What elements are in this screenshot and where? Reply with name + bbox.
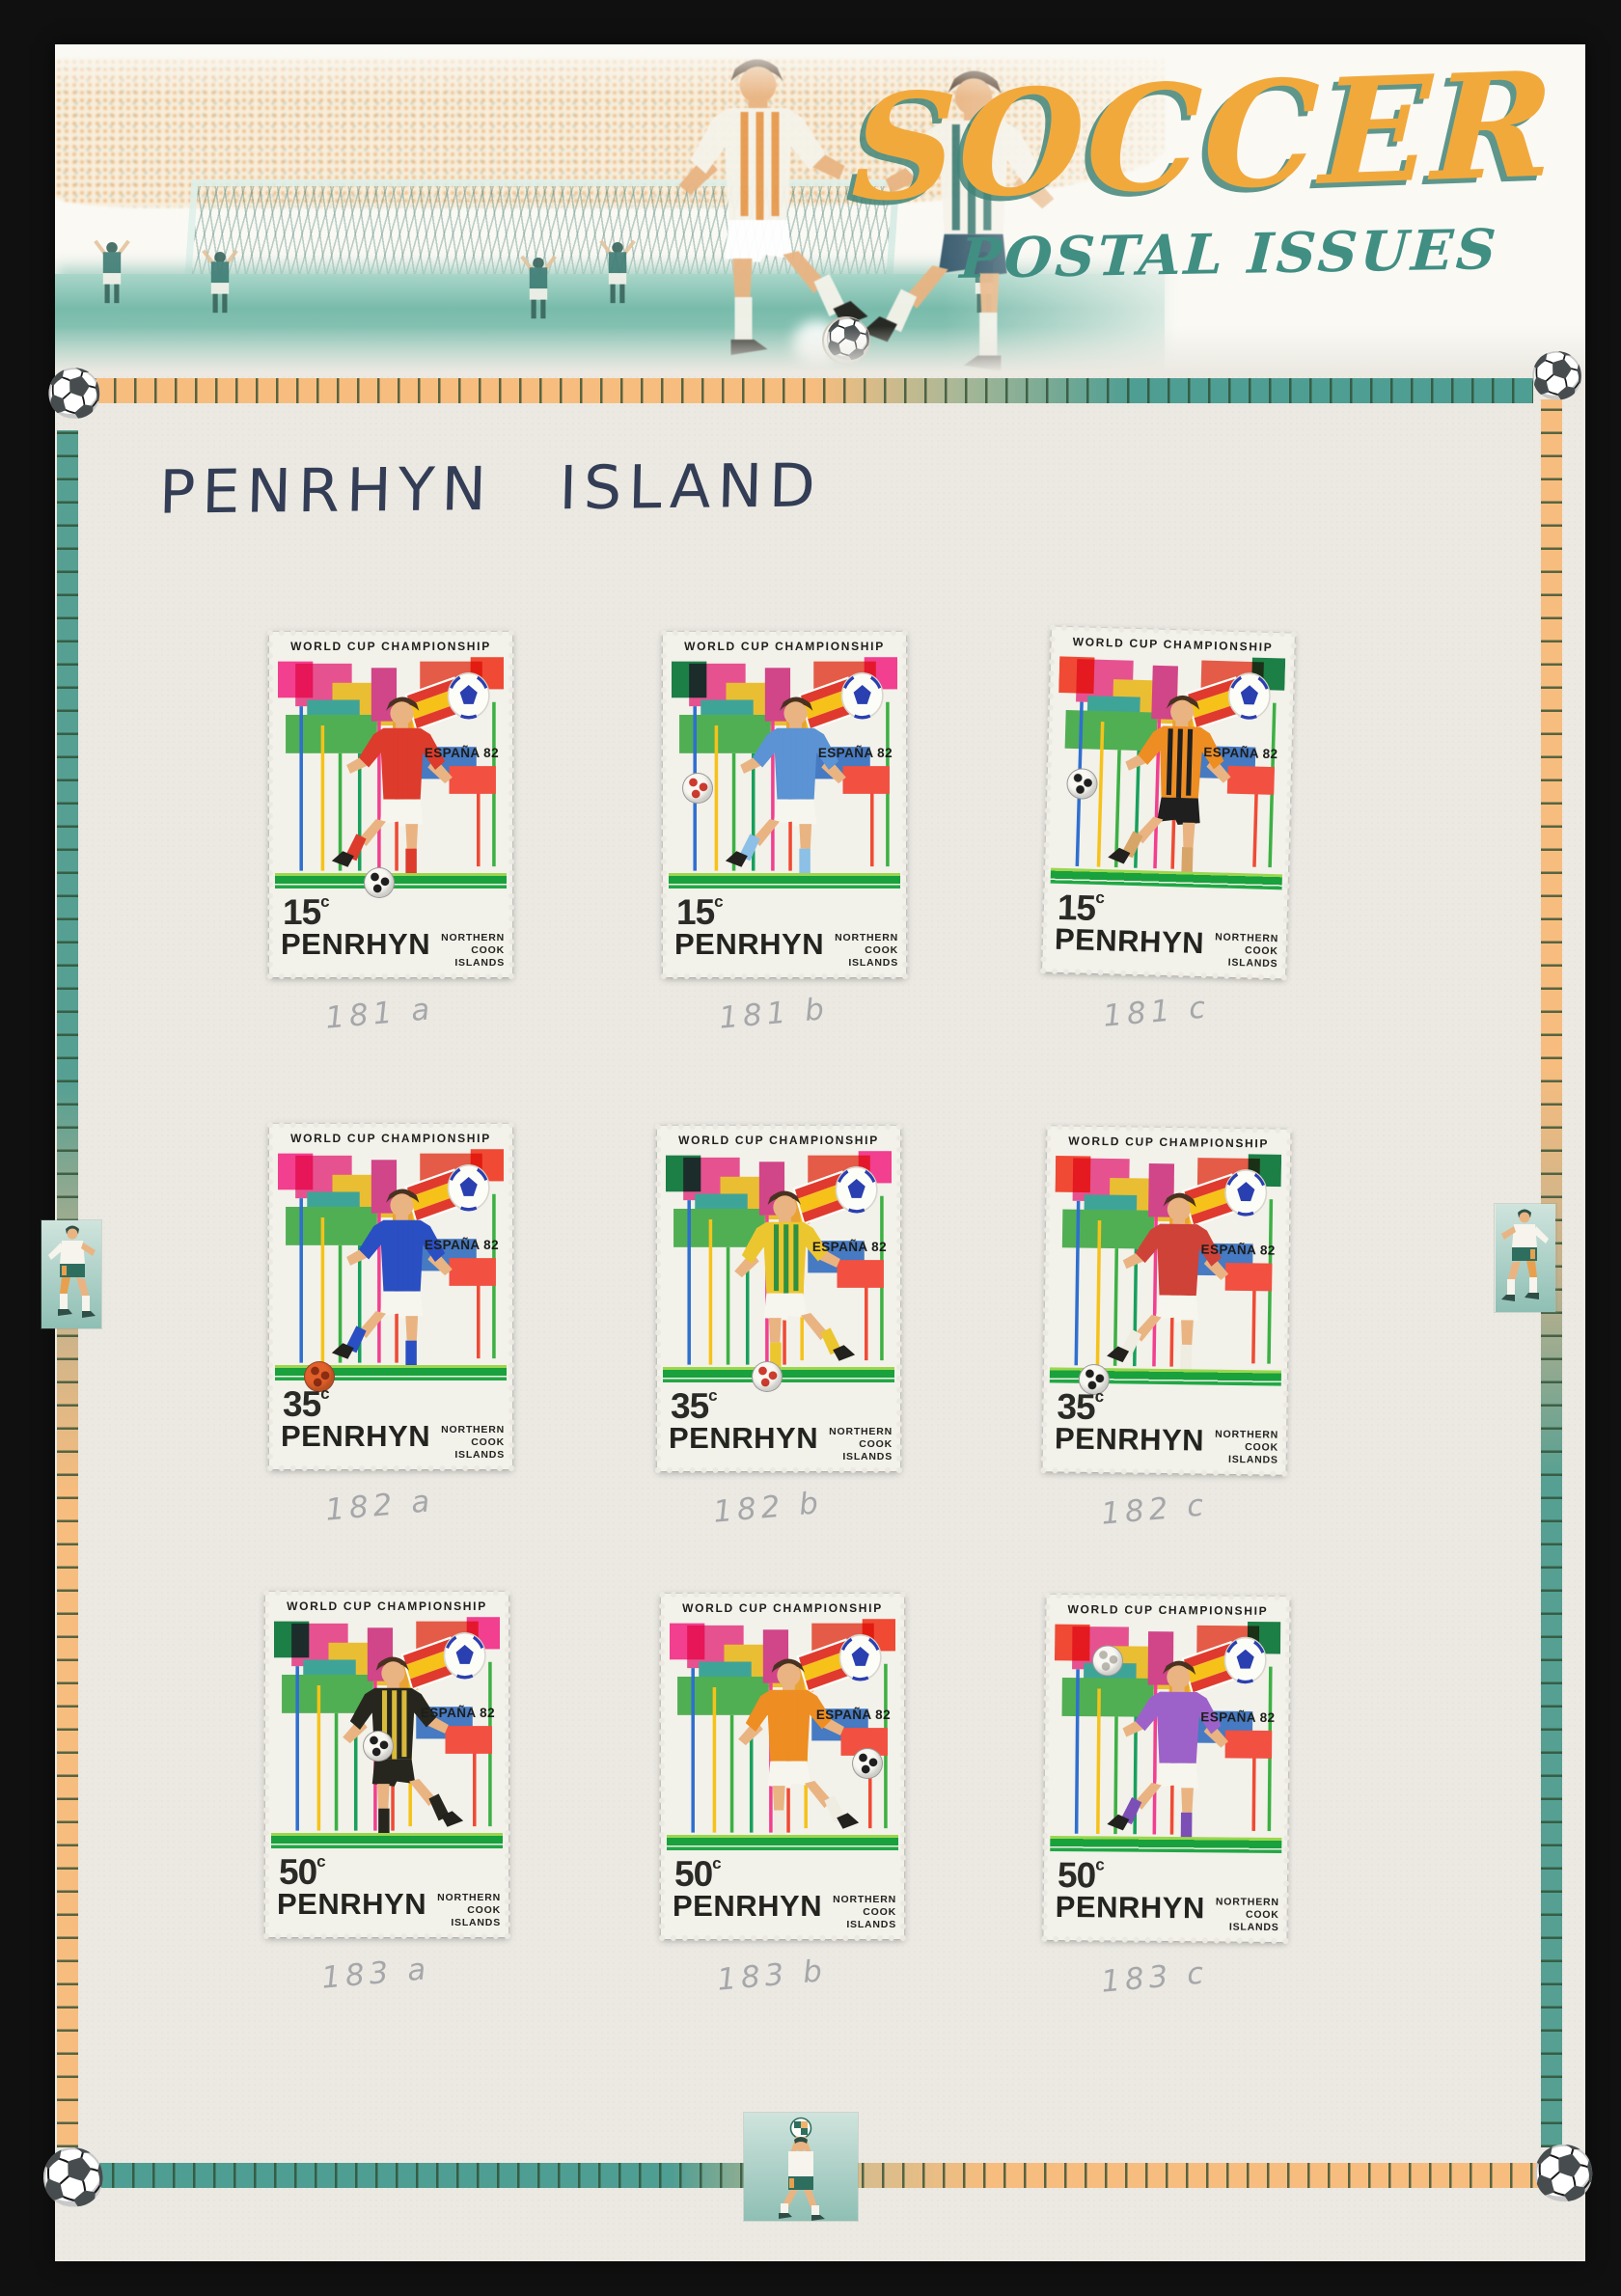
country-row: PENRHYN NORTHERNCOOK ISLANDS [1054,924,1278,971]
stamp-heading: WORLD CUP CHAMPIONSHIP [661,1601,904,1615]
catalog-annotation: 183 c [1100,1948,1297,1999]
soccer-player-medallion-left [41,1220,101,1328]
soccer-ball-icon: ⚽ [1531,2147,1587,2203]
stamp-181a: WORLD CUP CHAMPIONSHIP ESPAÑA 82 15c PEN… [269,632,520,1027]
soccer-ball-icon: ⚽ [45,370,96,421]
stamp-artwork [1054,650,1285,876]
ground-stripe [669,873,900,888]
handwritten-title: PENRHYN ISLAND [158,450,822,527]
player-figure [1101,1656,1250,1854]
stamp-182c: WORLD CUP CHAMPIONSHIP ESPAÑA 82 35c PEN… [1045,1128,1296,1523]
country-name: PENRHYN [281,929,430,959]
scanned-album-photo: { "header": { "title": "SOCCER", "subtit… [0,0,1621,2296]
catalog-annotation: 181 a [324,984,521,1035]
country-row: PENRHYN NORTHERNCOOK ISLANDS [1055,1423,1279,1467]
country-row: PENRHYN NORTHERNCOOK ISLANDS [277,1889,501,1929]
region-name: NORTHERNCOOK ISLANDS [438,932,505,970]
region-name: NORTHERNCOOK ISLANDS [434,1892,501,1929]
espana-82-label: ESPAÑA 82 [816,1708,891,1722]
region-name: NORTHERNCOOK ISLANDS [1212,1429,1278,1467]
soccer-ball-graphic [852,1748,883,1779]
player-figure [714,1188,861,1384]
stamp-heading: WORLD CUP CHAMPIONSHIP [265,1599,508,1613]
player-figure [326,694,473,890]
catalog-annotation: 182 b [712,1478,909,1529]
stamp-body: WORLD CUP CHAMPIONSHIP ESPAÑA 82 50c PEN… [265,1592,508,1937]
ground-stripe [271,1833,503,1848]
country-row: PENRHYN NORTHERNCOOK ISLANDS [281,929,505,970]
player-figure [720,694,866,890]
stamp-artwork [670,1617,895,1837]
stamp-artwork [672,655,897,875]
soccer-player-medallion-bottom [744,2113,858,2221]
stamp-181c: WORLD CUP CHAMPIONSHIP ESPAÑA 82 15c PEN… [1047,630,1298,1025]
catalog-annotation: 183 b [716,1946,913,1997]
region-name: NORTHERNCOOK ISLANDS [832,932,898,970]
stamp-artwork [278,1147,504,1367]
ground-stripe [1050,1836,1281,1853]
soccer-ball-graphic [682,773,713,804]
stamp-artwork [666,1149,892,1369]
stamp-artwork [1053,1149,1281,1372]
header-collage: ⚽ SOCCER POSTAL ISSUES [55,44,1585,372]
stamp-body: WORLD CUP CHAMPIONSHIP ESPAÑA 82 50c PEN… [1043,1595,1289,1942]
stamp-183b: WORLD CUP CHAMPIONSHIP ESPAÑA 82 50c PEN… [661,1594,912,1989]
stamp-body: WORLD CUP CHAMPIONSHIP ESPAÑA 82 35c PEN… [1043,1126,1291,1474]
page-title: SOCCER [849,44,1557,234]
country-name: PENRHYN [1055,1423,1205,1455]
espana-82-label: ESPAÑA 82 [818,746,893,760]
region-name: NORTHERNCOOK ISLANDS [1213,1896,1279,1934]
stamp-183c: WORLD CUP CHAMPIONSHIP ESPAÑA 82 50c PEN… [1045,1596,1296,1991]
player-figure [1102,690,1254,890]
country-row: PENRHYN NORTHERNCOOK ISLANDS [1056,1892,1279,1934]
country-name: PENRHYN [277,1889,426,1919]
catalog-annotation: 181 c [1102,982,1299,1033]
player-figure [326,1186,473,1382]
country-name: PENRHYN [1056,1892,1205,1923]
stamp-body: WORLD CUP CHAMPIONSHIP ESPAÑA 82 50c PEN… [661,1594,904,1939]
region-name: NORTHERNCOOK ISLANDS [1211,931,1278,970]
ground-stripe [667,1835,898,1850]
stamp-181b: WORLD CUP CHAMPIONSHIP ESPAÑA 82 15c PEN… [663,632,914,1027]
country-name: PENRHYN [669,1423,818,1453]
stamp-body: WORLD CUP CHAMPIONSHIP ESPAÑA 82 15c PEN… [269,632,512,977]
soccer-ball-graphic [364,867,395,898]
stamp-artwork [274,1615,500,1835]
stamp-heading: WORLD CUP CHAMPIONSHIP [1047,1134,1290,1151]
soccer-ball-icon: ⚽ [40,2151,97,2209]
stamp-artwork [1053,1618,1280,1840]
stamp-body: WORLD CUP CHAMPIONSHIP ESPAÑA 82 35c PEN… [657,1126,900,1471]
country-name: PENRHYN [281,1421,430,1451]
region-name: NORTHERNCOOK ISLANDS [826,1426,893,1463]
stamp-heading: WORLD CUP CHAMPIONSHIP [663,640,906,653]
catalog-annotation: 182 c [1100,1480,1297,1531]
soccer-player-medallion-right [1495,1204,1556,1312]
stamp-heading: WORLD CUP CHAMPIONSHIP [269,1132,512,1145]
espana-82-label: ESPAÑA 82 [1200,1709,1275,1725]
soccer-ball-icon: ⚽ [1529,353,1578,401]
player-figure [1101,1189,1250,1387]
stamp-182b: WORLD CUP CHAMPIONSHIP ESPAÑA 82 35c PEN… [657,1126,908,1521]
country-row: PENRHYN NORTHERNCOOK ISLANDS [673,1891,896,1931]
soccer-ball-graphic [1092,1645,1123,1676]
country-row: PENRHYN NORTHERNCOOK ISLANDS [674,929,898,970]
soccer-ball-graphic [752,1361,783,1392]
stamp-body: WORLD CUP CHAMPIONSHIP ESPAÑA 82 15c PEN… [1042,627,1295,979]
stamp-heading: WORLD CUP CHAMPIONSHIP [657,1134,900,1147]
espana-82-label: ESPAÑA 82 [425,1238,499,1252]
stamp-heading: WORLD CUP CHAMPIONSHIP [269,640,512,653]
country-name: PENRHYN [674,929,824,959]
espana-82-label: ESPAÑA 82 [812,1240,887,1254]
region-name: NORTHERNCOOK ISLANDS [830,1894,896,1931]
country-name: PENRHYN [673,1891,822,1921]
page-subtitle: POSTAL ISSUES [958,217,1500,291]
stamp-body: WORLD CUP CHAMPIONSHIP ESPAÑA 82 35c PEN… [269,1124,512,1469]
stamp-body: WORLD CUP CHAMPIONSHIP ESPAÑA 82 15c PEN… [663,632,906,977]
country-row: PENRHYN NORTHERNCOOK ISLANDS [669,1423,893,1463]
catalog-annotation: 181 b [718,984,915,1035]
stamp-182a: WORLD CUP CHAMPIONSHIP ESPAÑA 82 35c PEN… [269,1124,520,1519]
stamp-artwork [278,655,504,875]
catalog-annotation: 182 a [324,1476,521,1527]
country-name: PENRHYN [1055,924,1205,958]
espana-82-label: ESPAÑA 82 [1203,745,1278,761]
region-name: NORTHERNCOOK ISLANDS [438,1424,505,1462]
espana-82-label: ESPAÑA 82 [1201,1242,1276,1257]
espana-82-label: ESPAÑA 82 [421,1706,495,1720]
player-figure [718,1655,865,1852]
album-page: ⚽ SOCCER POSTAL ISSUES ⚽ ⚽ ⚽ ⚽ PENRHYN I… [55,44,1585,2261]
catalog-annotation: 183 a [320,1944,517,1995]
stamp-183a: WORLD CUP CHAMPIONSHIP ESPAÑA 82 50c PEN… [265,1592,516,1987]
stamp-heading: WORLD CUP CHAMPIONSHIP [1046,1602,1289,1618]
soccer-ball-graphic [363,1731,394,1762]
country-row: PENRHYN NORTHERNCOOK ISLANDS [281,1421,505,1462]
player-figure [322,1654,469,1850]
top-border [94,378,1533,403]
espana-82-label: ESPAÑA 82 [425,746,499,760]
